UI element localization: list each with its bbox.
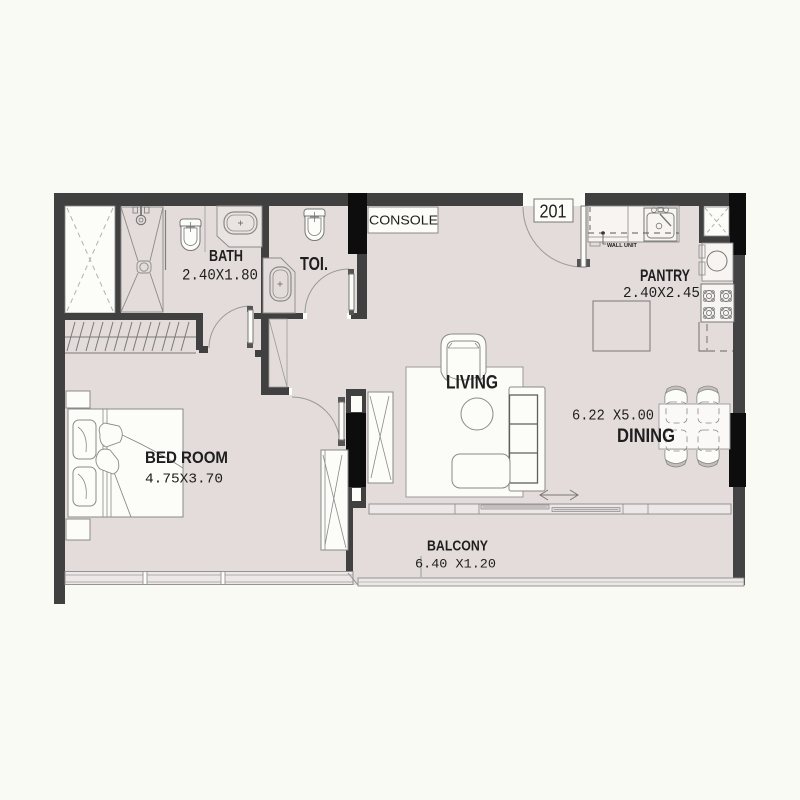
svg-text:BATH: BATH: [209, 248, 243, 265]
svg-text:6.40 X1.20: 6.40 X1.20: [415, 557, 496, 572]
svg-text:BALCONY: BALCONY: [427, 539, 488, 555]
svg-text:TOI.: TOI.: [300, 254, 328, 274]
svg-text:2.40X1.80: 2.40X1.80: [182, 267, 258, 285]
svg-text:BED ROOM: BED ROOM: [145, 448, 228, 467]
svg-text:LIVING: LIVING: [446, 372, 498, 394]
svg-text:CONSOLE: CONSOLE: [369, 213, 438, 228]
svg-text:4.75X3.70: 4.75X3.70: [145, 473, 223, 488]
svg-text:DINING: DINING: [617, 426, 675, 447]
svg-text:WALL UNIT: WALL UNIT: [607, 243, 637, 249]
svg-text:6.22 X5.00: 6.22 X5.00: [572, 408, 654, 425]
svg-text:2.40X2.45: 2.40X2.45: [623, 286, 700, 302]
svg-text:201: 201: [540, 202, 567, 222]
svg-text:PANTRY: PANTRY: [640, 266, 690, 285]
